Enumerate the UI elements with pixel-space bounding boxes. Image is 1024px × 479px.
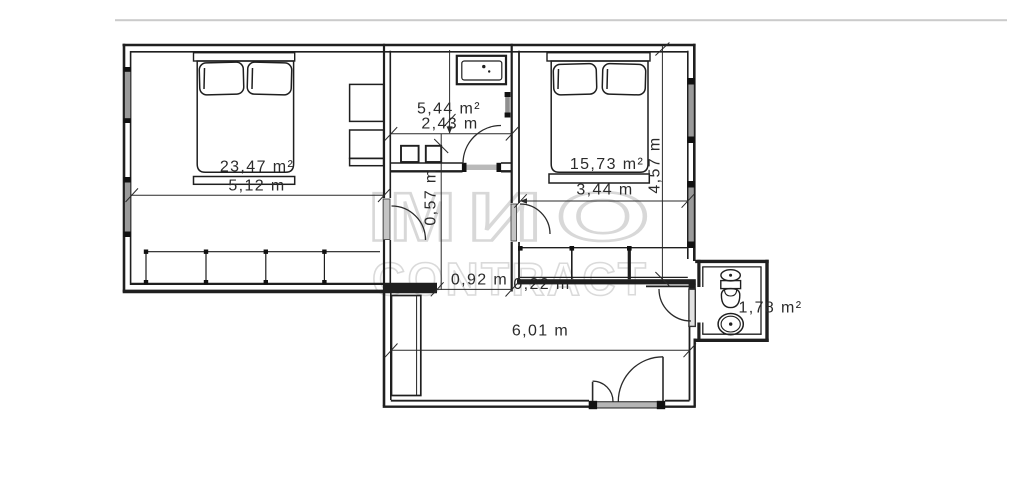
svg-text:23,47 m²: 23,47 m² [220, 158, 294, 175]
svg-text:0,22 m: 0,22 m [513, 276, 570, 293]
svg-text:4,57 m: 4,57 m [647, 136, 664, 193]
svg-text:0,57 m: 0,57 m [423, 168, 440, 225]
svg-text:5,12 m: 5,12 m [228, 177, 285, 194]
svg-text:3,44 m: 3,44 m [576, 181, 633, 198]
svg-text:15,73 m²: 15,73 m² [570, 156, 644, 173]
svg-text:6,01 m: 6,01 m [512, 322, 569, 339]
svg-text:1,78 m²: 1,78 m² [738, 299, 802, 316]
svg-text:0,92 m: 0,92 m [451, 271, 508, 288]
svg-text:CONTRACT: CONTRACT [372, 253, 648, 305]
svg-text:N: N [467, 178, 542, 256]
svg-text:2,43 m: 2,43 m [421, 115, 478, 132]
